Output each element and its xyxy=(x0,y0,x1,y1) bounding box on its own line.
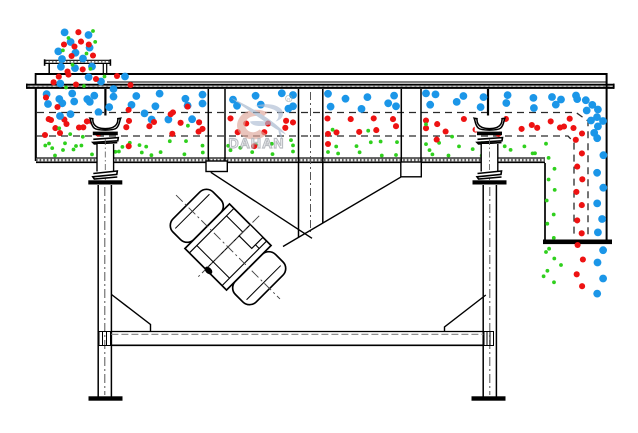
svg-text:DAHAN: DAHAN xyxy=(229,135,285,151)
